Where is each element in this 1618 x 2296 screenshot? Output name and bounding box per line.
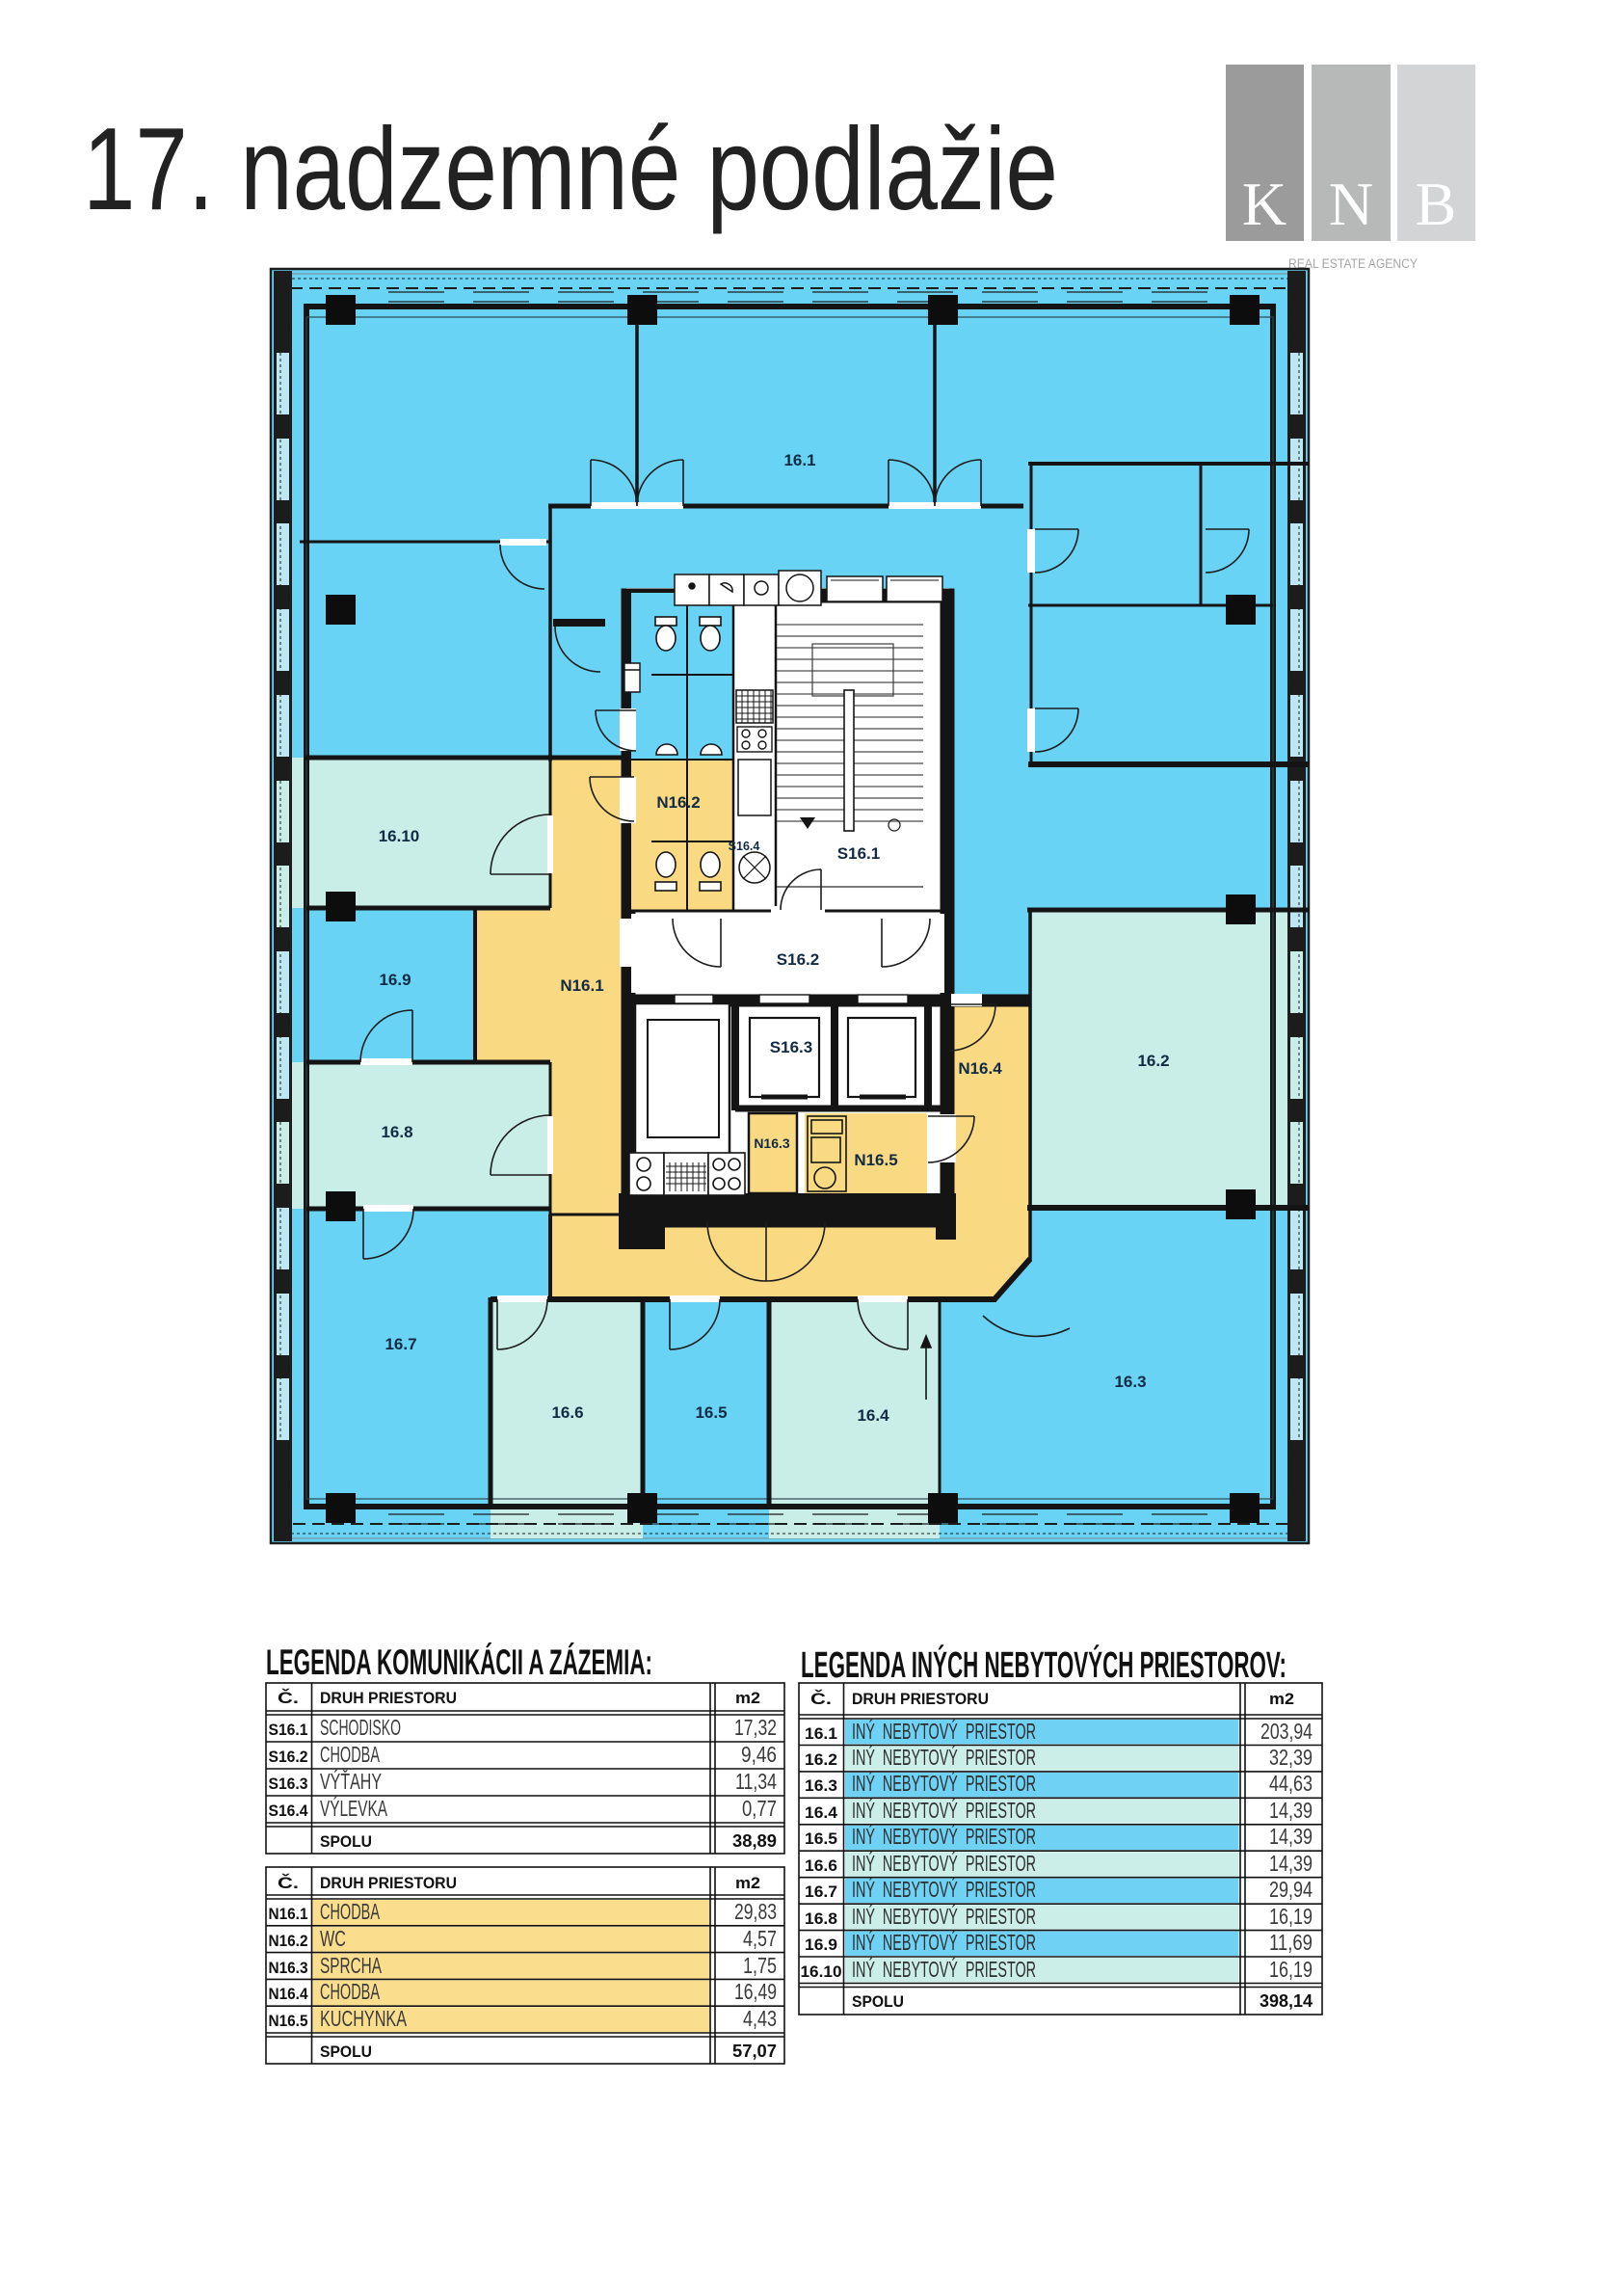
svg-text:16.2: 16.2 [1137,1052,1169,1070]
svg-text:CHODBA: CHODBA [320,1899,380,1924]
svg-text:LEGENDA INÝCH NEBYTOVÝCH PRIES: LEGENDA INÝCH NEBYTOVÝCH PRIESTOROV: [801,1643,1286,1686]
svg-text:m2: m2 [735,1689,760,1707]
svg-text:Č.: Č. [278,1874,299,1892]
svg-text:29,94: 29,94 [1269,1877,1313,1902]
svg-text:INÝ NEBYTOVÝ PRIESTOR: INÝ NEBYTOVÝ PRIESTOR [852,1930,1036,1955]
svg-text:16.3: 16.3 [1114,1373,1146,1391]
svg-text:VÝŤAHY: VÝŤAHY [320,1769,382,1794]
svg-text:17. nadzemné podlažie: 17. nadzemné podlažie [83,103,1058,234]
svg-text:16,19: 16,19 [1269,1957,1313,1982]
svg-text:S16.2: S16.2 [777,950,819,969]
svg-text:SCHODISKO: SCHODISKO [320,1715,401,1740]
svg-text:m2: m2 [735,1874,760,1892]
svg-text:VÝLEVKA: VÝLEVKA [320,1796,387,1821]
svg-text:N16.5: N16.5 [854,1151,897,1169]
svg-text:S16.2: S16.2 [269,1748,308,1766]
svg-text:B: B [1416,170,1457,238]
svg-text:SPOLU: SPOLU [852,1992,904,2011]
svg-text:CHODBA: CHODBA [320,1742,380,1767]
svg-text:32,39: 32,39 [1269,1745,1313,1770]
svg-text:DRUH PRIESTORU: DRUH PRIESTORU [320,1874,457,1892]
svg-text:4,43: 4,43 [743,2006,777,2031]
svg-text:S16.3: S16.3 [770,1038,812,1056]
svg-text:WC: WC [320,1926,346,1951]
svg-text:16.4: 16.4 [857,1406,889,1425]
svg-text:16.7: 16.7 [805,1882,837,1901]
svg-text:INÝ NEBYTOVÝ PRIESTOR: INÝ NEBYTOVÝ PRIESTOR [852,1957,1036,1982]
svg-text:N16.5: N16.5 [269,2012,308,2030]
svg-text:S16.1: S16.1 [269,1721,308,1739]
svg-text:14,39: 14,39 [1269,1798,1313,1823]
svg-text:44,63: 44,63 [1269,1771,1313,1796]
svg-text:N16.2: N16.2 [656,793,700,812]
svg-text:INÝ NEBYTOVÝ PRIESTOR: INÝ NEBYTOVÝ PRIESTOR [852,1851,1036,1876]
svg-text:14,39: 14,39 [1269,1824,1313,1849]
svg-text:N16.4: N16.4 [269,1985,308,2003]
svg-text:16.1: 16.1 [783,451,815,469]
svg-text:16.5: 16.5 [805,1829,837,1848]
svg-text:16.6: 16.6 [805,1856,837,1875]
svg-text:4,57: 4,57 [743,1926,777,1951]
svg-text:N16.3: N16.3 [269,1959,308,1977]
svg-text:398,14: 398,14 [1260,1991,1313,2011]
svg-text:LEGENDA KOMUNIKÁCII A ZÁZEMIA:: LEGENDA KOMUNIKÁCII A ZÁZEMIA: [266,1642,652,1682]
svg-text:16.10: 16.10 [379,827,420,845]
svg-text:16,49: 16,49 [734,1979,777,2004]
svg-text:N16.3: N16.3 [754,1135,790,1151]
svg-text:Č.: Č. [278,1689,299,1707]
svg-text:16.9: 16.9 [379,971,411,989]
svg-text:16.4: 16.4 [805,1803,838,1822]
svg-text:SPOLU: SPOLU [320,2042,372,2061]
svg-text:S16.3: S16.3 [269,1775,308,1793]
svg-text:INÝ NEBYTOVÝ PRIESTOR: INÝ NEBYTOVÝ PRIESTOR [852,1771,1036,1796]
svg-text:16.6: 16.6 [551,1403,583,1422]
svg-text:SPOLU: SPOLU [320,1832,372,1851]
svg-text:57,07: 57,07 [732,2042,777,2061]
svg-text:16.1: 16.1 [805,1724,837,1743]
svg-text:16.3: 16.3 [805,1776,837,1795]
svg-text:DRUH PRIESTORU: DRUH PRIESTORU [320,1689,457,1707]
svg-text:38,89: 38,89 [732,1831,777,1851]
svg-text:16.8: 16.8 [805,1909,837,1928]
svg-text:16.9: 16.9 [805,1936,837,1954]
svg-text:INÝ NEBYTOVÝ PRIESTOR: INÝ NEBYTOVÝ PRIESTOR [852,1824,1036,1849]
svg-text:INÝ NEBYTOVÝ PRIESTOR: INÝ NEBYTOVÝ PRIESTOR [852,1745,1036,1770]
svg-text:INÝ NEBYTOVÝ PRIESTOR: INÝ NEBYTOVÝ PRIESTOR [852,1877,1036,1902]
svg-text:INÝ NEBYTOVÝ PRIESTOR: INÝ NEBYTOVÝ PRIESTOR [852,1798,1036,1823]
svg-text:16,19: 16,19 [1269,1904,1313,1929]
svg-text:SPRCHA: SPRCHA [320,1953,382,1978]
svg-text:16.8: 16.8 [381,1123,412,1141]
svg-text:K: K [1242,170,1286,238]
svg-text:N: N [1329,170,1373,238]
svg-text:11,34: 11,34 [735,1769,777,1794]
svg-text:CHODBA: CHODBA [320,1979,380,2004]
svg-text:9,46: 9,46 [741,1742,777,1767]
svg-text:m2: m2 [1269,1690,1294,1708]
svg-text:11,69: 11,69 [1269,1930,1313,1955]
svg-text:DRUH PRIESTORU: DRUH PRIESTORU [852,1690,989,1708]
svg-text:0,77: 0,77 [742,1796,777,1821]
svg-text:S16.4: S16.4 [269,1802,308,1820]
svg-text:N16.1: N16.1 [269,1905,308,1923]
svg-text:KUCHYNKA: KUCHYNKA [320,2006,407,2031]
svg-text:INÝ NEBYTOVÝ PRIESTOR: INÝ NEBYTOVÝ PRIESTOR [852,1904,1036,1929]
svg-text:16.2: 16.2 [805,1750,837,1769]
svg-text:17,32: 17,32 [734,1715,777,1740]
svg-text:16.7: 16.7 [385,1335,416,1353]
svg-text:Č.: Č. [810,1690,832,1708]
svg-text:N16.4: N16.4 [958,1059,1002,1078]
svg-text:N16.1: N16.1 [560,976,603,995]
svg-text:203,94: 203,94 [1260,1719,1313,1744]
svg-text:N16.2: N16.2 [269,1932,308,1950]
svg-text:1,75: 1,75 [743,1953,777,1978]
svg-text:29,83: 29,83 [734,1899,777,1924]
svg-text:S16.1: S16.1 [837,844,880,863]
svg-text:S16.4: S16.4 [729,840,760,853]
svg-text:14,39: 14,39 [1269,1851,1313,1876]
svg-text:16.10: 16.10 [801,1962,842,1981]
svg-text:INÝ NEBYTOVÝ PRIESTOR: INÝ NEBYTOVÝ PRIESTOR [852,1719,1036,1744]
svg-text:16.5: 16.5 [695,1403,727,1422]
